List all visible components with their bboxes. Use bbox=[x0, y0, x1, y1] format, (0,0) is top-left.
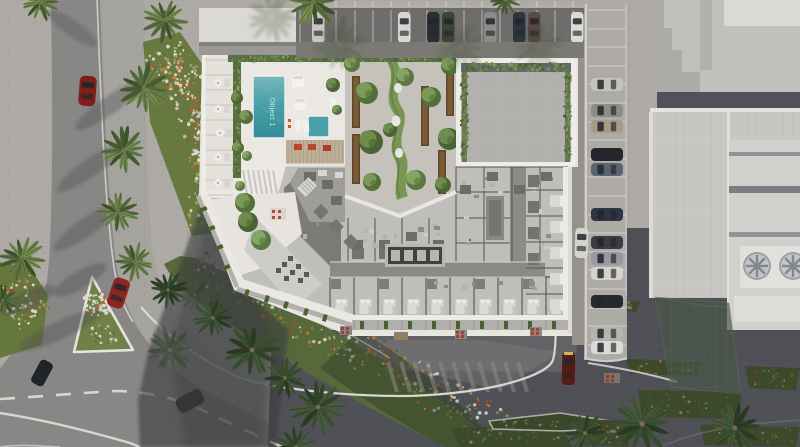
svg-text:Object 1: Object 1 bbox=[268, 97, 277, 126]
